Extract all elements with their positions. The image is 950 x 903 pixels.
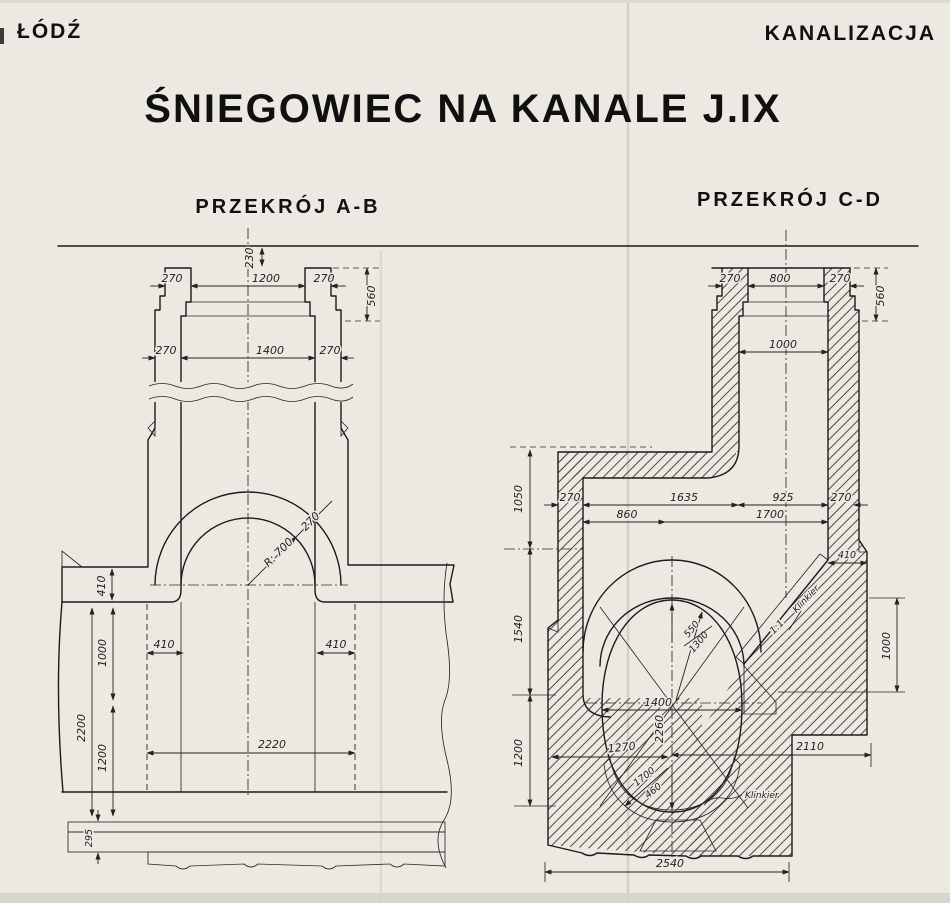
dim-collar-width: 800 <box>770 272 791 285</box>
blueprint-canvas: ŁÓDŹ KANALIZACJA ŚNIEGOWIEC NA KANALE J.… <box>0 0 950 903</box>
dim-depth-lower: 1200 <box>96 744 109 772</box>
dim-offset-base: 2110 <box>796 740 824 753</box>
dim-shaft-wall-r: 270 <box>320 344 341 357</box>
dim-base-thk: 295 <box>84 829 95 847</box>
dim-shaft-width: 1400 <box>256 344 284 357</box>
dim-slope-h: 1000 <box>880 632 893 660</box>
dim-offset-l: 860 <box>617 508 638 521</box>
dim-width-lower: 2220 <box>258 738 286 751</box>
dim-wall-l: 270 <box>560 491 581 504</box>
dim-collar-wall-r: 270 <box>314 272 335 285</box>
dim-ledge-l: 410 <box>154 638 175 651</box>
page-title: ŚNIEGOWIEC NA KANALE J.IX <box>144 85 781 131</box>
dim-base-width: 2540 <box>656 857 684 870</box>
dim-slab-thk: 410 <box>95 576 108 597</box>
dim-depth-mid: 1540 <box>512 615 525 643</box>
dim-depth-lower: 1200 <box>512 739 525 767</box>
dim-collar-wall-l: 270 <box>162 272 183 285</box>
section-cd-label: PRZEKRÓJ C-D <box>697 187 883 211</box>
dim-depth-total: 2200 <box>75 714 88 742</box>
dim-span-l: 1635 <box>670 491 698 504</box>
corner-label-city: ŁÓDŹ <box>17 19 82 43</box>
dim-depth-roof: 1050 <box>512 485 525 513</box>
dim-span-r: 925 <box>773 491 794 504</box>
dim-collar-wall-l: 270 <box>720 272 741 285</box>
dim-collar-height: 560 <box>874 286 887 307</box>
dim-wall-thk: 410 <box>838 550 856 561</box>
dim-collar-width: 1200 <box>252 272 280 285</box>
dim-wall-r: 270 <box>831 491 852 504</box>
corner-label-department: KANALIZACJA <box>765 22 936 45</box>
break-line <box>149 382 353 402</box>
dim-ledge-r: 410 <box>326 638 347 651</box>
dim-depth-upper: 1000 <box>96 639 109 667</box>
dim-shaft-width: 1000 <box>769 338 797 351</box>
dim-shaft-wall-l: 270 <box>156 344 177 357</box>
label-invert-lining: Klinkier <box>745 791 780 801</box>
paper-artifacts <box>0 0 950 903</box>
dim-collar-wall-r: 270 <box>830 272 851 285</box>
dim-offset-r: 1700 <box>756 508 784 521</box>
drawing-sheet: ŁÓDŹ KANALIZACJA ŚNIEGOWIEC NA KANALE J.… <box>0 0 950 903</box>
dim-top-cover: 230 <box>243 248 256 269</box>
dim-width: 1400 <box>644 696 672 709</box>
section-ab-label: PRZEKRÓJ A-B <box>195 194 380 218</box>
dim-height: 2260 <box>653 715 666 743</box>
dim-collar-height: 560 <box>365 286 378 307</box>
